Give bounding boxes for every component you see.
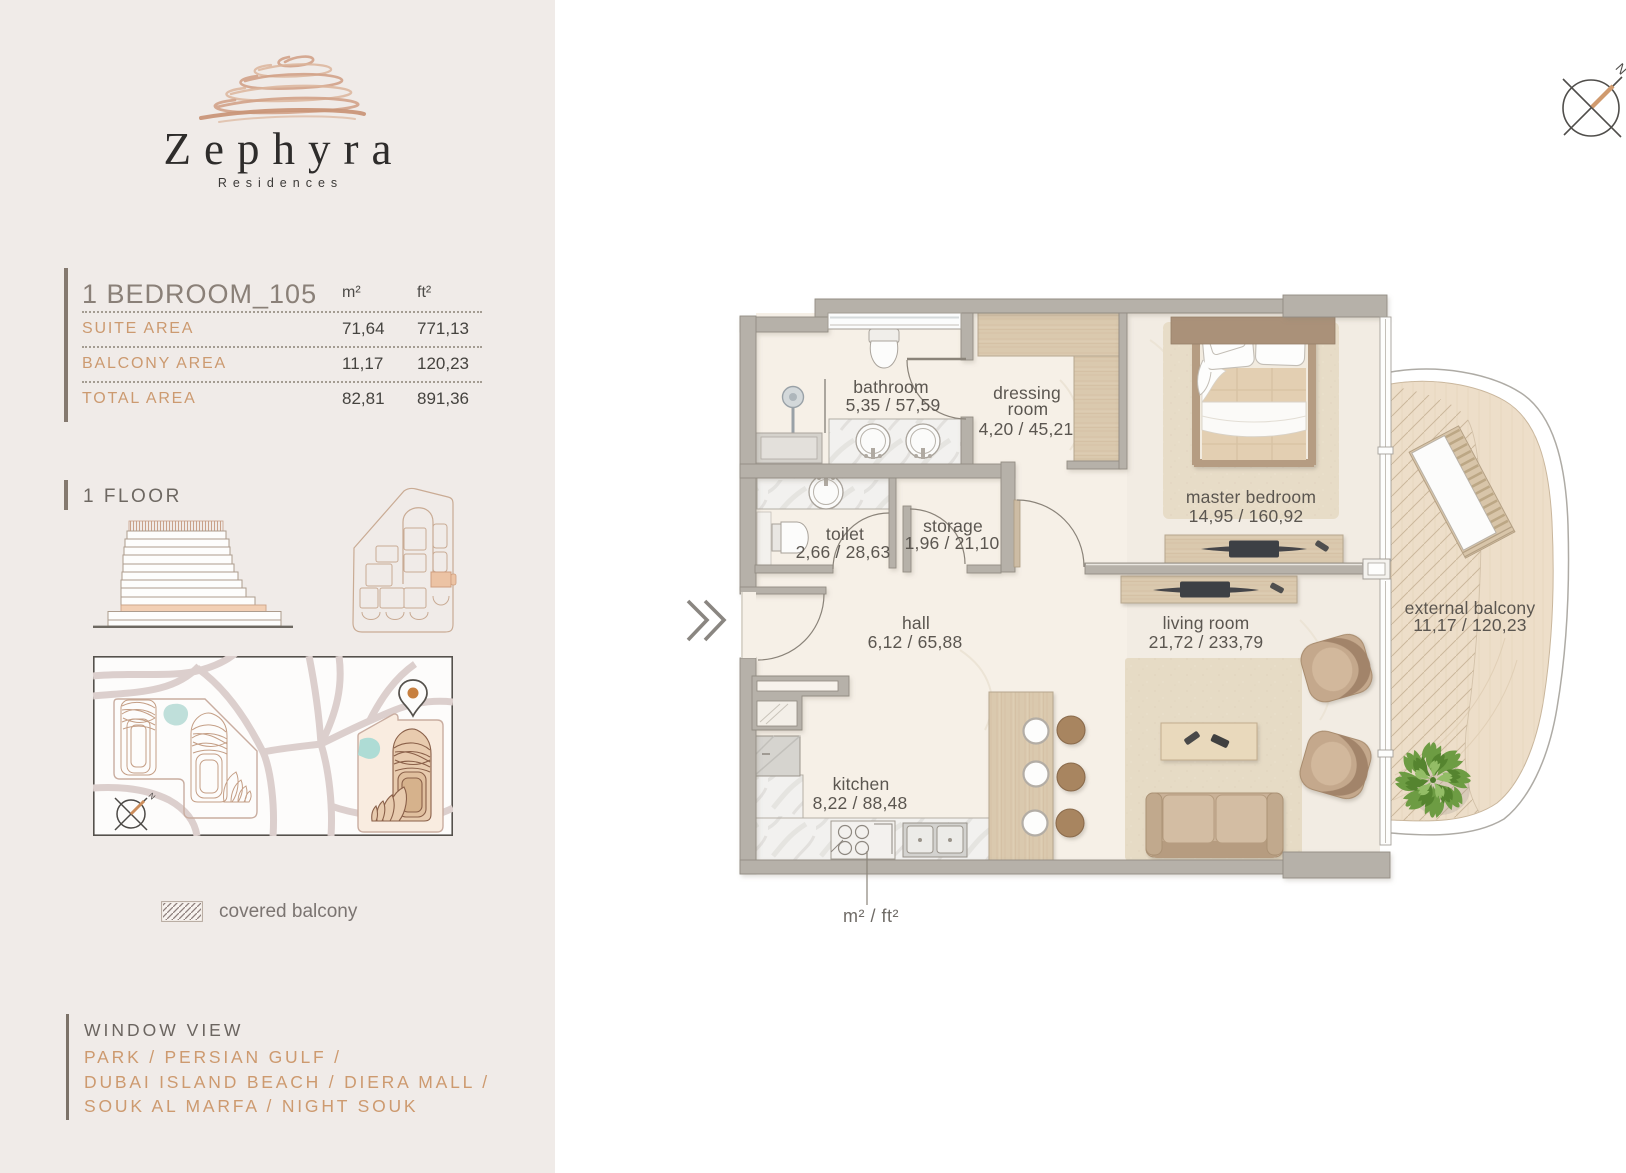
svg-text:room: room	[1008, 399, 1049, 419]
svg-text:master bedroom: master bedroom	[1186, 487, 1316, 507]
svg-text:bathroom: bathroom	[853, 377, 929, 397]
svg-text:8,22 / 88,48: 8,22 / 88,48	[813, 793, 908, 813]
svg-text:kitchen: kitchen	[833, 774, 890, 794]
svg-text:11,17 / 120,23: 11,17 / 120,23	[1413, 615, 1526, 635]
svg-text:1,96 / 21,10: 1,96 / 21,10	[905, 533, 1000, 553]
svg-text:14,95 / 160,92: 14,95 / 160,92	[1189, 506, 1304, 526]
svg-text:living room: living room	[1163, 613, 1250, 633]
svg-text:2,66 / 28,63: 2,66 / 28,63	[796, 542, 891, 562]
svg-text:21,72 / 233,79: 21,72 / 233,79	[1149, 632, 1264, 652]
svg-text:6,12 / 65,88: 6,12 / 65,88	[868, 632, 963, 652]
svg-text:5,35 / 57,59: 5,35 / 57,59	[846, 395, 941, 415]
svg-text:N: N	[1613, 60, 1626, 77]
svg-text:m² / ft²: m² / ft²	[843, 906, 899, 926]
svg-text:4,20 / 45,21: 4,20 / 45,21	[979, 419, 1074, 439]
svg-text:toilet: toilet	[826, 524, 864, 544]
svg-text:hall: hall	[902, 613, 930, 633]
